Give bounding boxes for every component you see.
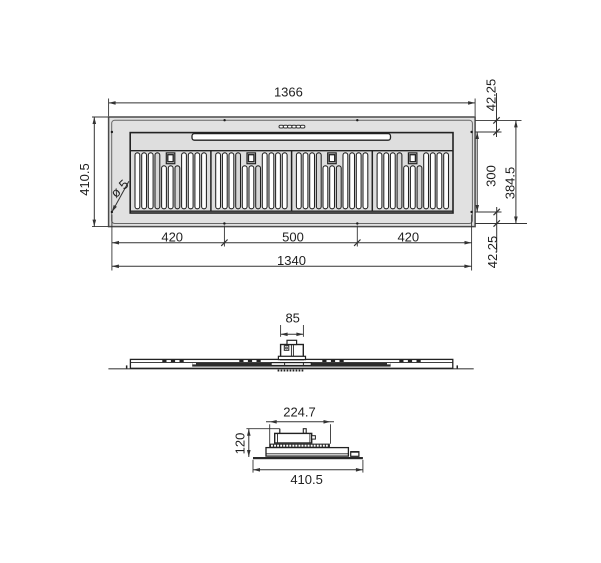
svg-text:42.25: 42.25 [484,79,499,112]
svg-text:420: 420 [161,229,183,244]
svg-text:1366: 1366 [274,85,303,100]
svg-text:420: 420 [397,229,419,244]
svg-text:300: 300 [484,165,499,187]
svg-text:410.5: 410.5 [77,163,92,196]
svg-text:85: 85 [285,310,299,325]
svg-text:384.5: 384.5 [503,167,518,200]
svg-text:42.25: 42.25 [485,236,500,269]
svg-text:120: 120 [232,433,247,455]
svg-text:224.7: 224.7 [283,405,316,420]
svg-text:410.5: 410.5 [290,472,323,487]
svg-text:500: 500 [282,229,304,244]
svg-text:1340: 1340 [277,253,306,268]
